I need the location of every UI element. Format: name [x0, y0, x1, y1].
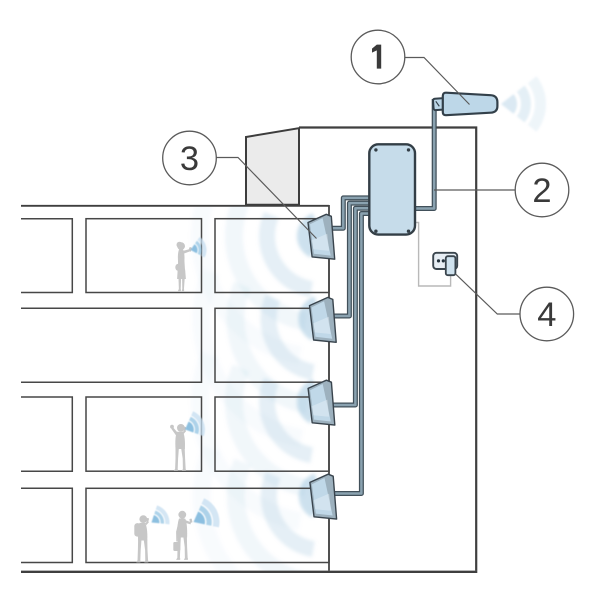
svg-text:2: 2 [532, 172, 551, 210]
svg-text:3: 3 [180, 140, 199, 178]
svg-text:4: 4 [537, 296, 556, 334]
